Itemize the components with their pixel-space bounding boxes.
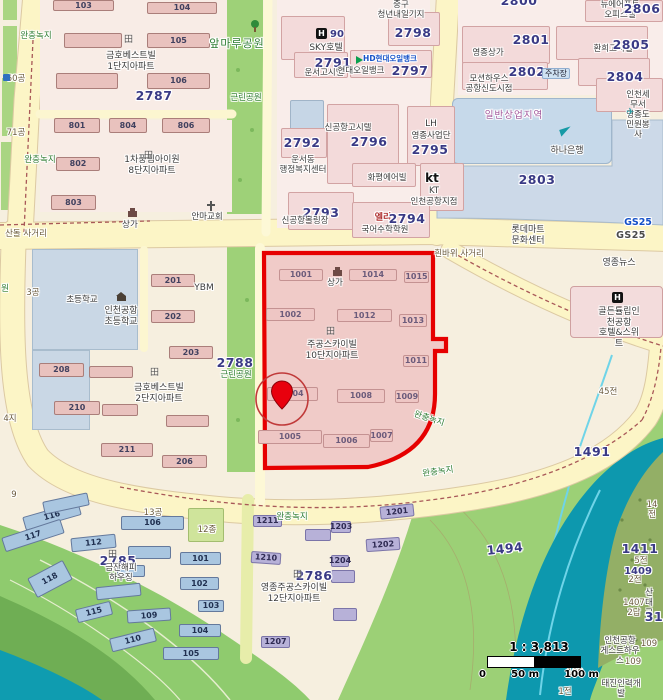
apt-icon: 田 [144,152,153,161]
tree-icon [250,20,260,32]
shop-icon [333,270,342,276]
label-motion: 모션하우스 공항신도시점 [466,74,513,94]
building-101: 101 [180,552,221,565]
scale-tick-0: 0 [479,669,486,680]
label-n2jeon: 2전 [628,575,641,585]
label-p1491: 1491 [574,445,611,460]
busstop-icon [3,74,10,81]
apt-icon: 田 [150,369,159,378]
building-104: 104 [147,2,217,14]
building-bar [64,33,122,48]
label-ynews: 영종뉴스 [602,258,635,269]
label-n45: 45전 [599,387,618,397]
label-p2802: 2802 [509,65,546,80]
label-p2801: 2801 [513,33,550,48]
green-strip [3,0,17,20]
label-sgositel: 신공항고시텔 [325,123,372,133]
building-1009: 1009 [395,390,419,403]
label-n109b: 109 [625,657,641,667]
label-sangga1: 영종상가 [472,48,503,58]
scale-tick-100: 100 m [564,669,599,680]
label-taejin: 태진인력개발 [600,679,642,699]
map-scale-bar: 1 : 3,813 0 50 m 100 m [479,640,599,680]
shop-icon [128,211,137,217]
label-n90: 90 [330,29,344,41]
label-hyundai: 현대오일뱅크 [338,66,385,76]
map-viewport[interactable]: 1031041051068018048068028032012022032082… [0,0,663,700]
building-203: 203 [169,346,213,359]
building-802: 802 [56,157,100,171]
label-n12: 12종 [198,525,217,535]
label-jugong: 주공스카이빌 10단지아파트 [306,340,359,361]
label-hinbawi: 흰바위 사거리 [434,249,484,259]
building-bar [305,529,331,541]
label-lh: LH [425,119,437,130]
label-p2806: 2806 [624,2,661,17]
label-ybm: YBM [194,283,213,294]
apt-icon: 田 [108,551,117,560]
label-ktsub: KT [429,186,439,196]
label-yjsaeop: 영종사업단 [411,131,450,141]
label-geullin2: 근린공원 [220,370,251,380]
building-1005: 1005 [258,430,322,444]
label-geullin1: 근린공원 [230,93,261,103]
building-208: 208 [39,363,84,377]
label-parking: 주차장 [542,68,570,79]
label-ilban: 일반상업지역 [485,110,543,121]
building-bar [333,608,357,621]
building-106: 106 [121,516,184,530]
label-happy: 금잔해피 하우징 [105,563,136,583]
hotel-h-icon: H [612,292,623,303]
label-elem1: 초등학교 [66,295,97,305]
building-1013: 1013 [399,314,427,327]
plane-icon: ✈ [626,108,634,118]
building-1207: 1207 [261,636,290,648]
building-103: 103 [53,0,114,11]
label-n4ji: 4지 [3,414,16,424]
building-103: 103 [198,600,224,612]
label-n14: 14전 [647,500,658,520]
label-church-lb: 안마교회 [191,212,222,222]
building-210: 210 [54,401,100,415]
label-p2797: 2797 [392,64,429,79]
label-sky: SKY호텔 [309,43,342,54]
building-bar [89,366,133,378]
building-1203: 1203 [331,521,351,533]
green-strip [3,26,17,74]
building-206: 206 [162,455,207,468]
label-p2804: 2804 [607,70,644,85]
apt-icon: 田 [293,571,302,580]
label-ktlogo: kt [425,171,439,185]
label-sangga2: 상가 [122,220,138,230]
apt-icon: 田 [326,328,335,337]
scale-segment-50-100 [534,657,580,667]
building-1202: 1202 [366,537,401,552]
scale-tick-50: 50 m [511,669,539,680]
scale-bar-segments [487,656,581,668]
building-1001: 1001 [279,269,323,281]
label-n13: 13공 [144,508,163,518]
building-1008: 1008 [337,389,385,403]
label-unseodong: 운서동 행정복지센터 [280,155,327,175]
building-801: 801 [54,118,100,133]
building-1007: 1007 [370,429,393,442]
apt-icon: 田 [124,36,133,45]
label-bowl: 신공항볼링장 [282,216,329,226]
label-wan5: 완충녹지 [276,512,307,522]
building-201: 201 [151,274,195,287]
building-1004: 1004 [267,387,318,401]
label-ktbranch: 인천공항지점 [411,197,458,207]
label-kumho2: 금호베스트빌 2단지아파트 [134,383,184,404]
school-block [32,350,90,430]
building-803: 803 [51,195,96,210]
label-sandol: 산돌 사거리 [5,229,47,239]
label-gugeo: 국어수학학원 [362,225,409,235]
label-apmaru: 앞마루공원 [209,38,265,51]
label-n71: 71공 [7,128,26,138]
label-hwapy: 화평에어빌 [367,173,406,183]
hotel-h-icon: H [316,28,327,39]
label-n1jeon: 1전 [558,687,571,697]
label-yj12: 영종주공스카이빌 12단지아파트 [261,583,327,604]
label-p2788: 2788 [217,356,254,371]
building-804: 804 [109,118,147,133]
label-gtulip: 골든튤립인천공항 호텔&스위트 [597,307,641,349]
label-junggu: 중구 청년내일기지 [378,0,425,20]
label-gs25a: GS25 [624,217,652,228]
label-wan1: 완충녹지 [20,31,51,41]
label-p2796: 2796 [351,135,388,150]
church-icon [206,201,215,211]
label-n9: 9 [11,490,16,500]
building-1204: 1204 [331,555,349,567]
label-n5jeon: 5전 [634,556,647,566]
label-gs25b: GS25 [616,230,646,241]
building-1006: 1006 [323,434,370,448]
label-p2795: 2795 [412,143,449,158]
label-kumho1: 금호베스트빌 1단지아파트 [106,51,156,72]
building-211: 211 [101,443,153,457]
building-106: 106 [147,73,210,89]
hd-green-icon [356,56,363,64]
label-sangga3: 상가 [327,278,343,288]
building-bar [56,73,118,89]
label-p2803: 2803 [519,173,556,188]
label-lotte: 롯데마트 문화센터 [511,225,544,246]
building-202: 202 [151,310,195,323]
label-n31: 31 [645,610,663,625]
label-p2787: 2787 [136,89,173,104]
scale-tick-labels: 0 50 m 100 m [479,669,599,680]
label-p1407: 1407 2답 [623,598,645,618]
building-bar [331,570,355,583]
label-elem2: 인천공항 초등학교 [104,306,137,327]
label-wan2: 완충녹지 [24,155,55,165]
label-p1411: 1411 [622,542,659,557]
label-n3g: 3공 [26,288,39,298]
park-strip [227,0,263,214]
building-105: 105 [163,647,219,660]
building-1011: 1011 [403,355,429,367]
label-p2792: 2792 [284,136,321,151]
scale-segment-0-50 [488,657,534,667]
label-n109a: 109 [641,639,657,649]
building-1015: 1015 [404,271,429,283]
building-102: 102 [180,577,219,590]
scale-ratio-label: 1 : 3,813 [479,640,599,654]
label-p2798: 2798 [395,26,432,41]
building-1014: 1014 [349,269,397,281]
hana-bank-block [452,98,612,164]
building-104: 104 [179,624,221,637]
building-1002: 1002 [266,308,315,321]
building-806: 806 [162,118,210,133]
label-nwon: 원 [1,284,9,294]
school-icon [116,292,127,301]
label-p2800: 2800 [501,0,538,9]
building-1012: 1012 [337,309,392,322]
label-p2805: 2805 [613,38,650,53]
building-1210: 1210 [251,551,282,565]
building-bar [102,404,138,416]
building-105: 105 [147,33,210,48]
building-bar [166,415,209,427]
label-hana: 하나은행 [550,146,583,157]
